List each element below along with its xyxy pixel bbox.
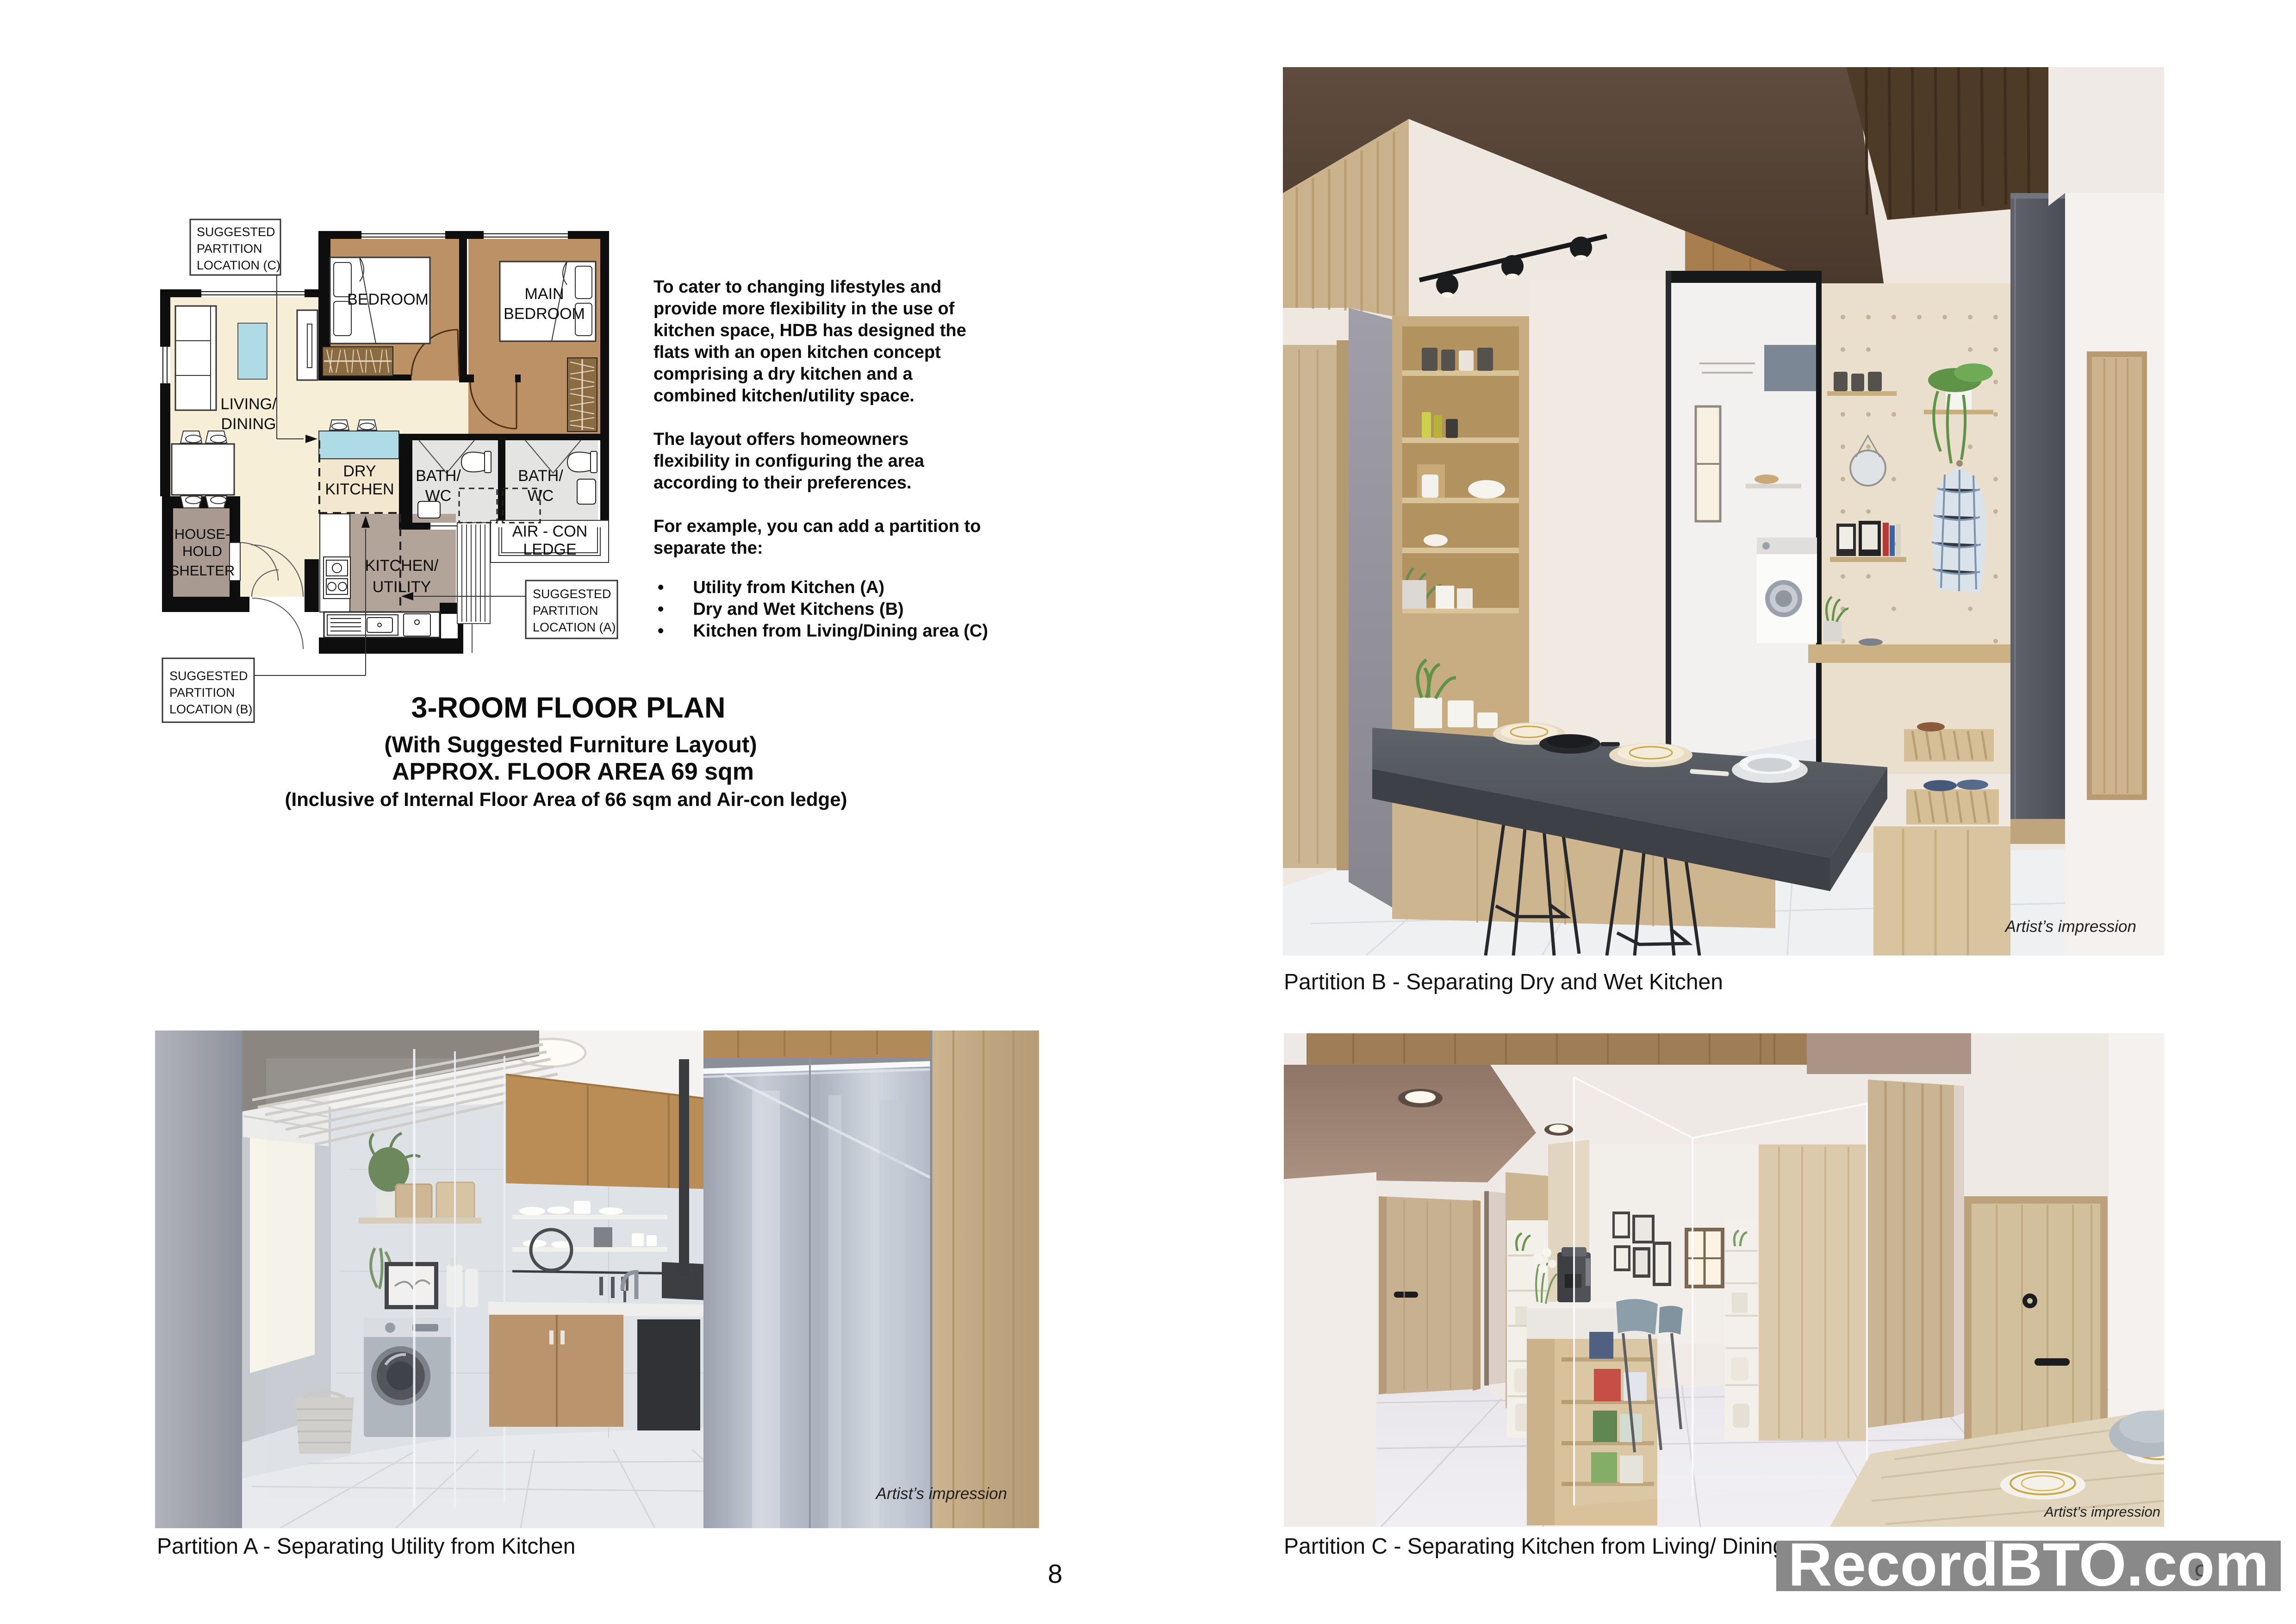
svg-text:KITCHEN/: KITCHEN/ [365,557,439,575]
svg-text:MAIN: MAIN [525,285,564,303]
svg-text:Artist’s impression: Artist’s impression [875,1485,1007,1503]
svg-text:BEDROOM: BEDROOM [347,291,429,308]
svg-text:WC: WC [425,487,452,505]
svg-text:HOLD: HOLD [182,543,222,559]
svg-text:UTILITY: UTILITY [373,578,431,596]
svg-text:KITCHEN: KITCHEN [325,481,394,498]
svg-text:BATH/: BATH/ [416,467,461,485]
svg-text:LOCATION (C): LOCATION (C) [197,258,280,272]
svg-text:Artist’s impression: Artist’s impression [2043,1504,2160,1520]
svg-text:Artist’s impression: Artist’s impression [2004,918,2136,936]
svg-text:SUGGESTED: SUGGESTED [533,587,611,601]
svg-text:AIR - CON: AIR - CON [512,523,587,540]
svg-text:PARTITION: PARTITION [197,242,262,256]
svg-text:SHELTER: SHELTER [170,562,235,579]
svg-text:DINING: DINING [221,415,276,433]
svg-text:LIVING/: LIVING/ [221,395,277,413]
svg-text:LOCATION (B): LOCATION (B) [169,702,253,716]
svg-text:BEDROOM: BEDROOM [504,305,585,323]
svg-text:WC: WC [528,487,554,505]
svg-text:BATH/: BATH/ [518,467,563,485]
svg-text:PARTITION: PARTITION [533,604,598,618]
svg-text:SUGGESTED: SUGGESTED [197,225,275,239]
svg-text:PARTITION: PARTITION [169,686,235,700]
svg-text:LEDGE: LEDGE [523,541,576,558]
svg-text:HOUSE-: HOUSE- [174,526,230,542]
svg-text:DRY: DRY [343,462,376,480]
svg-text:LOCATION (A): LOCATION (A) [533,620,616,634]
svg-text:SUGGESTED: SUGGESTED [169,669,248,683]
